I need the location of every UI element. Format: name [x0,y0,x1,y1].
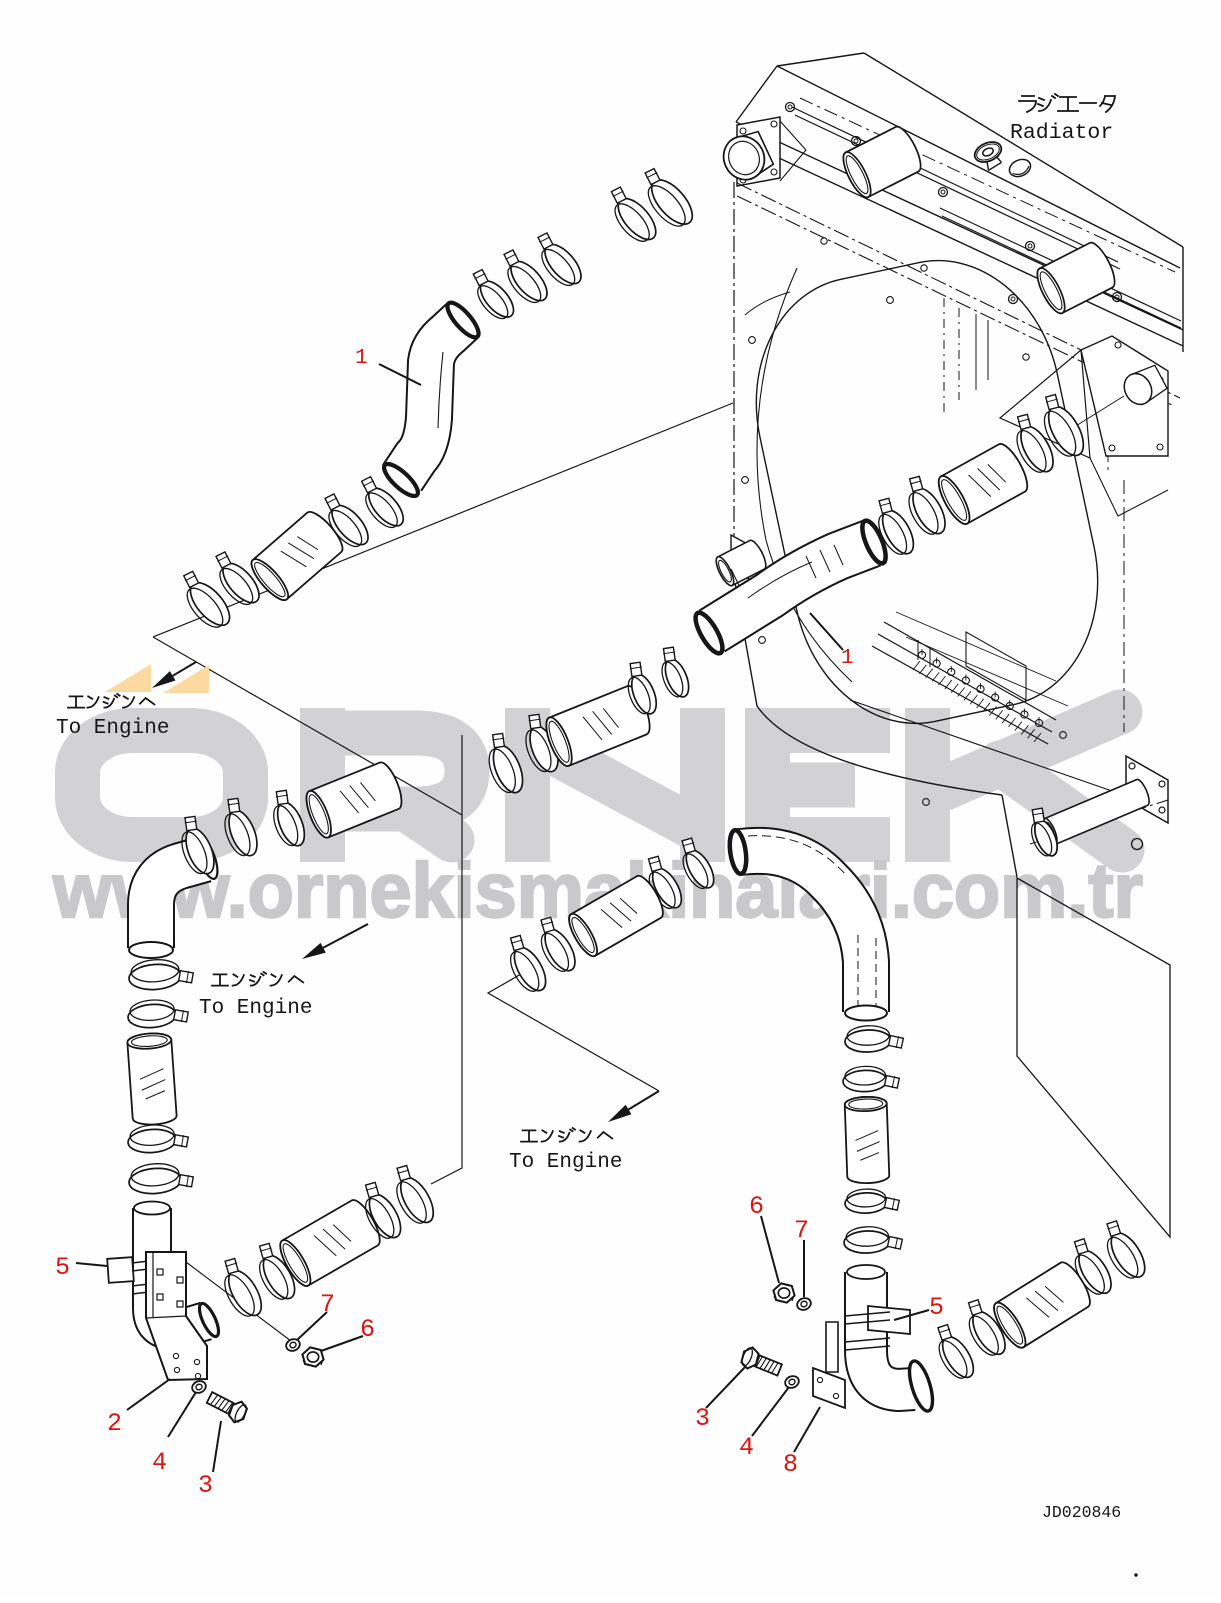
svg-text:6: 6 [749,1192,764,1221]
svg-text:4: 4 [739,1433,754,1462]
svg-text:8: 8 [783,1450,798,1479]
svg-text:To Engine: To Engine [56,717,169,740]
svg-text:1: 1 [355,347,368,370]
svg-text:4: 4 [152,1448,167,1477]
svg-text:7: 7 [320,1290,335,1319]
svg-text:6: 6 [360,1315,375,1344]
svg-text:JD020846: JD020846 [1042,1503,1121,1522]
svg-text:To Engine: To Engine [509,1151,622,1174]
svg-text:2: 2 [107,1409,122,1438]
svg-text:3: 3 [198,1471,213,1500]
svg-text:1: 1 [841,647,854,670]
svg-text:5: 5 [55,1253,70,1282]
svg-text:To Engine: To Engine [199,997,312,1020]
svg-text:7: 7 [794,1216,809,1245]
svg-text:3: 3 [695,1404,710,1433]
svg-text:5: 5 [929,1293,944,1322]
svg-text:Radiator: Radiator [1010,121,1113,145]
